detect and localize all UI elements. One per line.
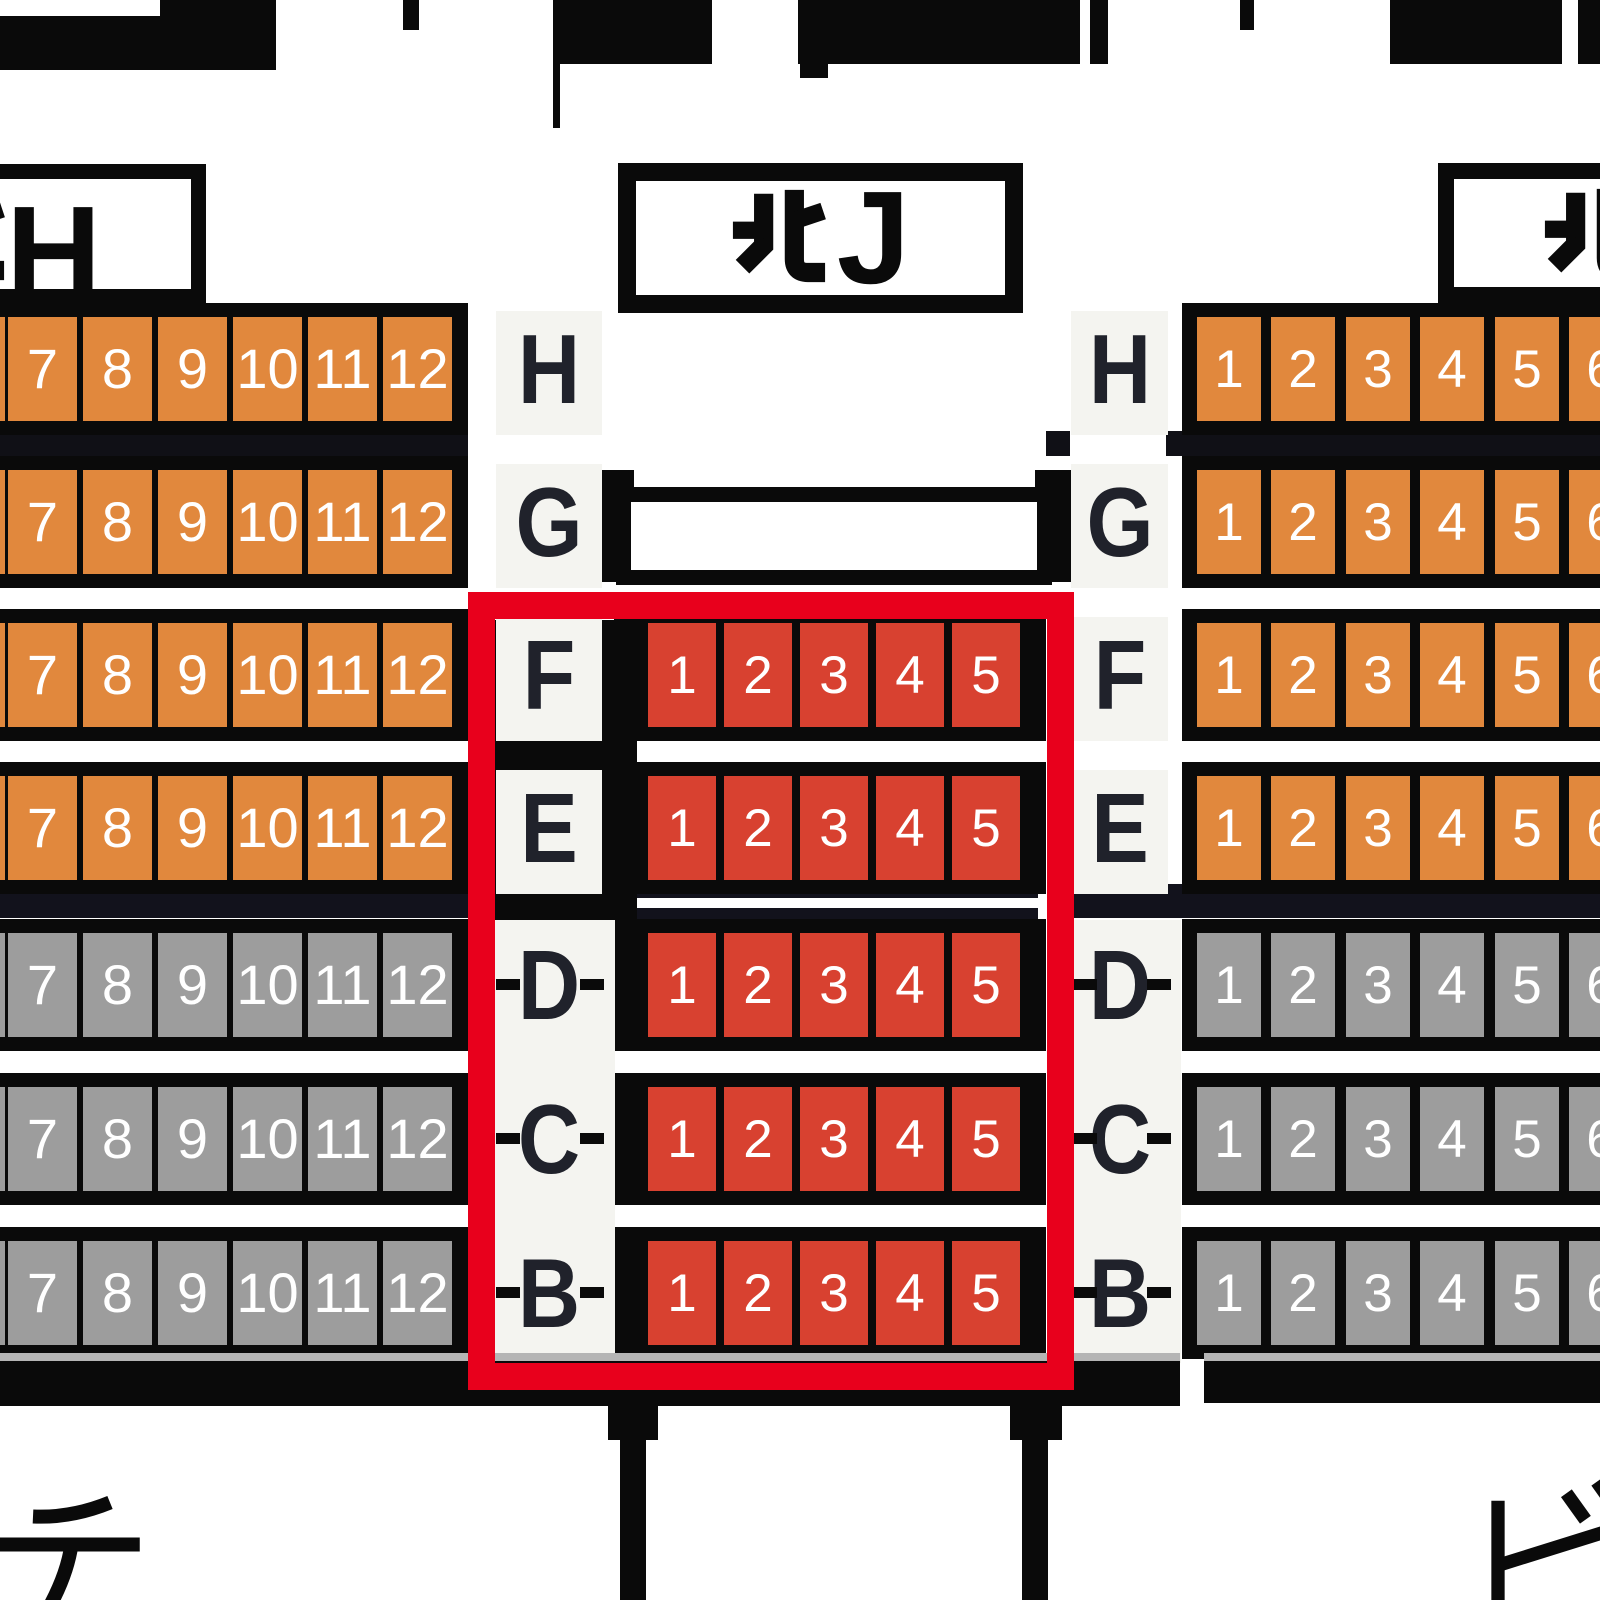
seat-row-frame-left-B: 789101112 <box>0 1227 468 1359</box>
seat-left-F-9[interactable]: 9 <box>158 623 227 727</box>
seat-right-E-1[interactable]: 1 <box>1197 776 1261 880</box>
seat-row-frame-left-C: 789101112 <box>0 1073 468 1205</box>
seat-left-D-11[interactable]: 11 <box>308 933 377 1037</box>
seat-row-frame-left-E: 789101112 <box>0 762 468 894</box>
seat-right-C-6[interactable]: 6 <box>1569 1087 1600 1191</box>
gate-structure-opening <box>631 502 1037 570</box>
seat-right-C-3[interactable]: 3 <box>1346 1087 1410 1191</box>
seat-right-F-6[interactable]: 6 <box>1569 623 1600 727</box>
seat-left-C-10[interactable]: 10 <box>233 1087 302 1191</box>
seat-right-B-3[interactable]: 3 <box>1346 1241 1410 1345</box>
row-label-H: H <box>505 313 593 425</box>
seat-right-F-1[interactable]: 1 <box>1197 623 1261 727</box>
seat-row-frame-right-G: 123456 <box>1182 456 1600 588</box>
seat-right-D-3[interactable]: 3 <box>1346 933 1410 1037</box>
seat-left-C-9[interactable]: 9 <box>158 1087 227 1191</box>
kanji-north-icon <box>731 188 827 284</box>
seat-left-D-10[interactable]: 10 <box>233 933 302 1037</box>
seat-left-B-11[interactable]: 11 <box>308 1241 377 1345</box>
row-label-tick <box>1147 1133 1171 1144</box>
gate-structure <box>616 487 1052 585</box>
seat-right-E-2[interactable]: 2 <box>1271 776 1335 880</box>
seat-left-H-10[interactable]: 10 <box>233 317 302 421</box>
seat-right-C-2[interactable]: 2 <box>1271 1087 1335 1191</box>
seat-left-D-9[interactable]: 9 <box>158 933 227 1037</box>
seat-left-H-8[interactable]: 8 <box>83 317 152 421</box>
structure-fragment <box>160 0 276 70</box>
structure-fragment <box>798 0 1080 64</box>
structure-fragment <box>800 64 828 78</box>
seat-left-E-12[interactable]: 12 <box>383 776 452 880</box>
seat-right-G-1[interactable]: 1 <box>1197 470 1261 574</box>
text-bi <box>1460 1478 1600 1600</box>
seat-left-B-12[interactable]: 12 <box>383 1241 452 1345</box>
seat-right-H-6[interactable]: 6 <box>1569 317 1600 421</box>
seat-left-E-8[interactable]: 8 <box>83 776 152 880</box>
selection-highlight-box <box>468 592 1074 1390</box>
seat-left-B-7[interactable]: 7 <box>8 1241 77 1345</box>
row-label-tick <box>1147 1287 1171 1298</box>
seat-row-frame-right-D: 123456 <box>1182 919 1600 1051</box>
seat-map: H J 789101112789101112789101112789101112… <box>0 0 1600 1600</box>
seat-left-G-11[interactable]: 11 <box>308 470 377 574</box>
seat-right-C-4[interactable]: 4 <box>1420 1087 1484 1191</box>
row-label-tick <box>1073 1287 1097 1298</box>
seat-left-H-9[interactable]: 9 <box>158 317 227 421</box>
seat-left-F-11[interactable]: 11 <box>308 623 377 727</box>
seat-left-B-x[interactable] <box>0 1241 5 1345</box>
seat-row-frame-right-E: 123456 <box>1182 762 1600 894</box>
aisle-wall <box>1022 1406 1048 1600</box>
structure-fragment <box>1090 0 1108 64</box>
seat-right-B-4[interactable]: 4 <box>1420 1241 1484 1345</box>
seat-left-D-x[interactable] <box>0 933 5 1037</box>
seat-left-F-x[interactable] <box>0 623 5 727</box>
seat-left-C-12[interactable]: 12 <box>383 1087 452 1191</box>
seat-right-D-5[interactable]: 5 <box>1495 933 1559 1037</box>
seat-left-G-10[interactable]: 10 <box>233 470 302 574</box>
seat-right-E-5[interactable]: 5 <box>1495 776 1559 880</box>
seat-left-G-7[interactable]: 7 <box>8 470 77 574</box>
seat-right-F-5[interactable]: 5 <box>1495 623 1559 727</box>
seat-left-F-10[interactable]: 10 <box>233 623 302 727</box>
section-letter: H <box>6 187 101 319</box>
seat-left-C-x[interactable] <box>0 1087 5 1191</box>
seat-right-B-1[interactable]: 1 <box>1197 1241 1261 1345</box>
seat-row-frame-right-H: 123456 <box>1182 303 1600 435</box>
seat-row-frame-left-H: 789101112 <box>0 303 468 435</box>
seat-right-D-1[interactable]: 1 <box>1197 933 1261 1037</box>
seat-left-E-9[interactable]: 9 <box>158 776 227 880</box>
seat-right-G-2[interactable]: 2 <box>1271 470 1335 574</box>
structure-fragment <box>556 0 712 64</box>
seat-right-E-4[interactable]: 4 <box>1420 776 1484 880</box>
seat-right-C-5[interactable]: 5 <box>1495 1087 1559 1191</box>
structure-fragment <box>1240 0 1254 30</box>
seat-right-G-6[interactable]: 6 <box>1569 470 1600 574</box>
seat-left-F-7[interactable]: 7 <box>8 623 77 727</box>
row-label-G: G <box>505 466 593 578</box>
section-letter: J <box>837 172 910 304</box>
row-label-E: E <box>1076 772 1164 884</box>
seat-right-H-3[interactable]: 3 <box>1346 317 1410 421</box>
seat-row-frame-left-F: 789101112 <box>0 609 468 741</box>
seat-right-F-4[interactable]: 4 <box>1420 623 1484 727</box>
seat-right-C-1[interactable]: 1 <box>1197 1087 1261 1191</box>
structure-fragment <box>1390 0 1562 64</box>
seat-left-E-x[interactable] <box>0 776 5 880</box>
seat-right-D-4[interactable]: 4 <box>1420 933 1484 1037</box>
text-chi <box>0 1492 145 1600</box>
seat-row-frame-left-D: 789101112 <box>0 919 468 1051</box>
section-label-north-k <box>1438 163 1600 303</box>
seat-row-frame-right-C: 123456 <box>1182 1073 1600 1205</box>
seat-left-C-7[interactable]: 7 <box>8 1087 77 1191</box>
seat-left-B-10[interactable]: 10 <box>233 1241 302 1345</box>
seat-right-B-5[interactable]: 5 <box>1495 1241 1559 1345</box>
row-label-H: H <box>1076 313 1164 425</box>
seat-right-H-2[interactable]: 2 <box>1271 317 1335 421</box>
seat-right-G-3[interactable]: 3 <box>1346 470 1410 574</box>
aisle-wall <box>620 1406 646 1600</box>
seat-left-G-8[interactable]: 8 <box>83 470 152 574</box>
seat-right-H-5[interactable]: 5 <box>1495 317 1559 421</box>
seat-right-G-4[interactable]: 4 <box>1420 470 1484 574</box>
row-label-G: G <box>1076 466 1164 578</box>
seat-left-B-9[interactable]: 9 <box>158 1241 227 1345</box>
row-label-tick <box>1147 979 1171 990</box>
seat-left-H-x[interactable] <box>0 317 5 421</box>
seat-left-F-12[interactable]: 12 <box>383 623 452 727</box>
concourse-wall <box>1204 1361 1600 1403</box>
section-label-north-h: H <box>0 164 206 304</box>
divider-band <box>1046 431 1070 456</box>
seat-right-D-2[interactable]: 2 <box>1271 933 1335 1037</box>
seat-left-D-12[interactable]: 12 <box>383 933 452 1037</box>
seat-left-H-11[interactable]: 11 <box>308 317 377 421</box>
seat-left-D-7[interactable]: 7 <box>8 933 77 1037</box>
seat-left-C-11[interactable]: 11 <box>308 1087 377 1191</box>
seat-left-C-8[interactable]: 8 <box>83 1087 152 1191</box>
structure-fragment <box>1578 0 1600 64</box>
seat-left-F-8[interactable]: 8 <box>83 623 152 727</box>
seat-left-H-12[interactable]: 12 <box>383 317 452 421</box>
seat-left-E-10[interactable]: 10 <box>233 776 302 880</box>
seat-right-F-2[interactable]: 2 <box>1271 623 1335 727</box>
seat-right-E-6[interactable]: 6 <box>1569 776 1600 880</box>
seat-right-B-2[interactable]: 2 <box>1271 1241 1335 1345</box>
seat-row-frame-left-G: 789101112 <box>0 456 468 588</box>
seat-right-H-4[interactable]: 4 <box>1420 317 1484 421</box>
seat-right-H-1[interactable]: 1 <box>1197 317 1261 421</box>
structure-fragment <box>0 16 162 70</box>
seat-row-frame-right-F: 123456 <box>1182 609 1600 741</box>
seat-right-D-6[interactable]: 6 <box>1569 933 1600 1037</box>
seat-right-F-3[interactable]: 3 <box>1346 623 1410 727</box>
seat-left-H-7[interactable]: 7 <box>8 317 77 421</box>
row-label-tick <box>1073 1133 1097 1144</box>
seat-left-G-9[interactable]: 9 <box>158 470 227 574</box>
seat-row-frame-right-B: 123456 <box>1182 1227 1600 1359</box>
seat-right-E-3[interactable]: 3 <box>1346 776 1410 880</box>
seat-right-B-6[interactable]: 6 <box>1569 1241 1600 1345</box>
section-label-north-j: J <box>618 163 1023 313</box>
seat-left-B-8[interactable]: 8 <box>83 1241 152 1345</box>
seat-left-E-7[interactable]: 7 <box>8 776 77 880</box>
row-label-F: F <box>1076 619 1164 731</box>
structure-fragment <box>403 0 419 30</box>
row-label-tick <box>1073 979 1097 990</box>
block-shadow-line <box>1204 1353 1600 1361</box>
seat-left-G-12[interactable]: 12 <box>383 470 452 574</box>
seat-left-E-11[interactable]: 11 <box>308 776 377 880</box>
seat-left-D-8[interactable]: 8 <box>83 933 152 1037</box>
kanji-north-icon <box>1543 187 1600 283</box>
seat-left-G-x[interactable] <box>0 470 5 574</box>
seat-right-G-5[interactable]: 5 <box>1495 470 1559 574</box>
